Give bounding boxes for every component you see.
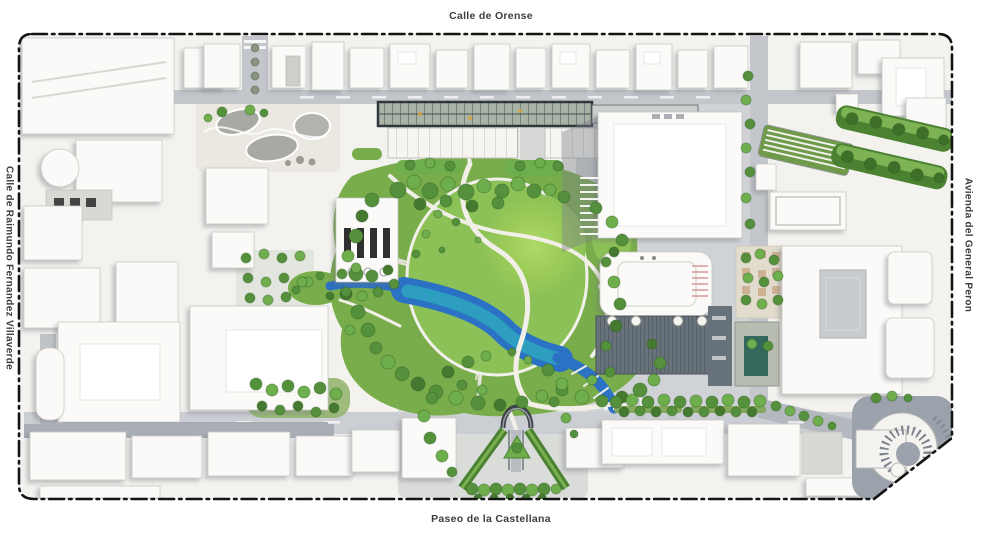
pool-courtyard	[735, 322, 779, 386]
courtyard-building	[782, 246, 902, 394]
street-label-top: Calle de Orense	[449, 10, 533, 22]
street-label-left: Calle de Raimundo Fernandez Villaverde	[4, 166, 15, 370]
street-label-bottom: Paseo de la Castellana	[431, 513, 551, 525]
street-label-right: Avienda del General Peron	[963, 178, 974, 312]
torre-picasso-tower	[598, 112, 742, 238]
site-plan-figure: Calle de Orense Paseo de la Castellana C…	[0, 0, 983, 536]
site-plan-rendering	[0, 0, 983, 536]
cylindrical-tower	[41, 149, 79, 187]
